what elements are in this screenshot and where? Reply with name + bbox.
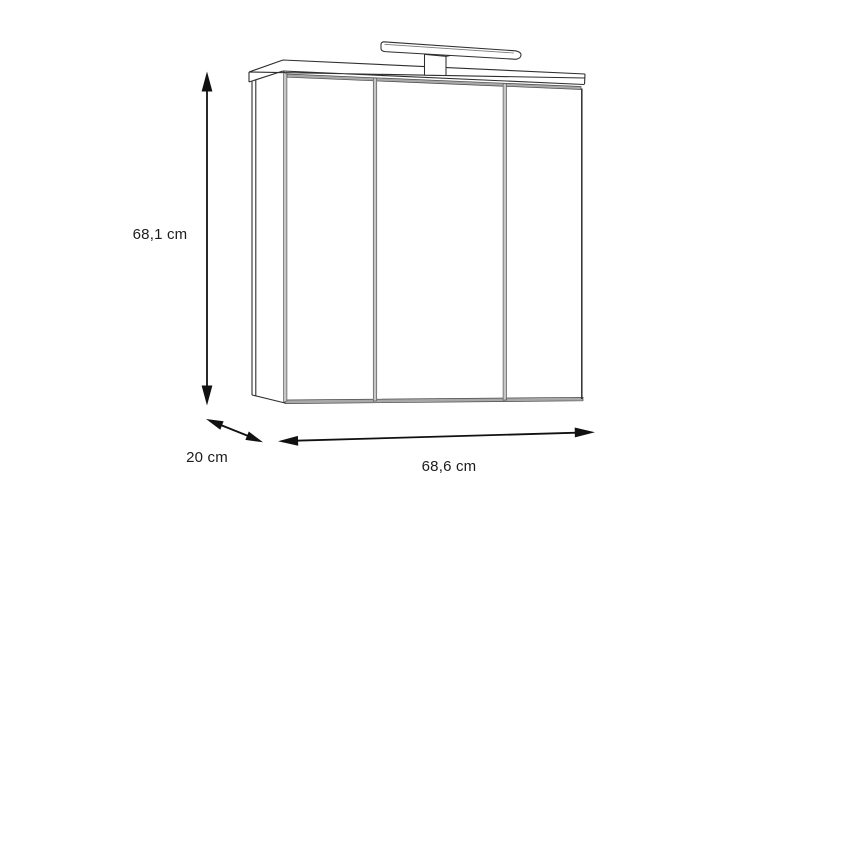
mirror-door-center — [377, 79, 503, 401]
depth-dimension-arrow — [206, 419, 263, 442]
mirror-door-right — [507, 85, 582, 401]
door-gap-left-center — [373, 78, 376, 401]
dimension-diagram-page: 68,1 cm 20 cm 68,6 cm — [0, 0, 868, 868]
cabinet-side-panel — [252, 72, 284, 403]
arrowhead-down-icon — [202, 386, 213, 406]
arrowhead-left-icon — [278, 436, 298, 446]
arrowhead-right-icon — [575, 428, 595, 438]
depth-dimension-label: 20 cm — [186, 450, 228, 466]
mirror-door-left — [287, 75, 373, 403]
width-dimension-label: 68,6 cm — [422, 459, 477, 475]
door-gap-center-right — [503, 83, 506, 400]
lamp-stem — [425, 54, 447, 76]
width-dimension-arrow — [278, 428, 595, 446]
height-dimension-arrow — [202, 72, 213, 406]
door-hinge-gap-left-edge — [284, 72, 287, 403]
arrowhead-upleft-icon — [206, 419, 224, 430]
height-dimension-label: 68,1 cm — [133, 227, 188, 243]
lamp-bar — [381, 42, 521, 60]
mirror-cabinet-dimension-drawing — [0, 0, 868, 868]
arrowhead-downright-icon — [245, 432, 263, 443]
cabinet-faces — [249, 60, 585, 403]
arrowhead-up-icon — [202, 72, 213, 92]
